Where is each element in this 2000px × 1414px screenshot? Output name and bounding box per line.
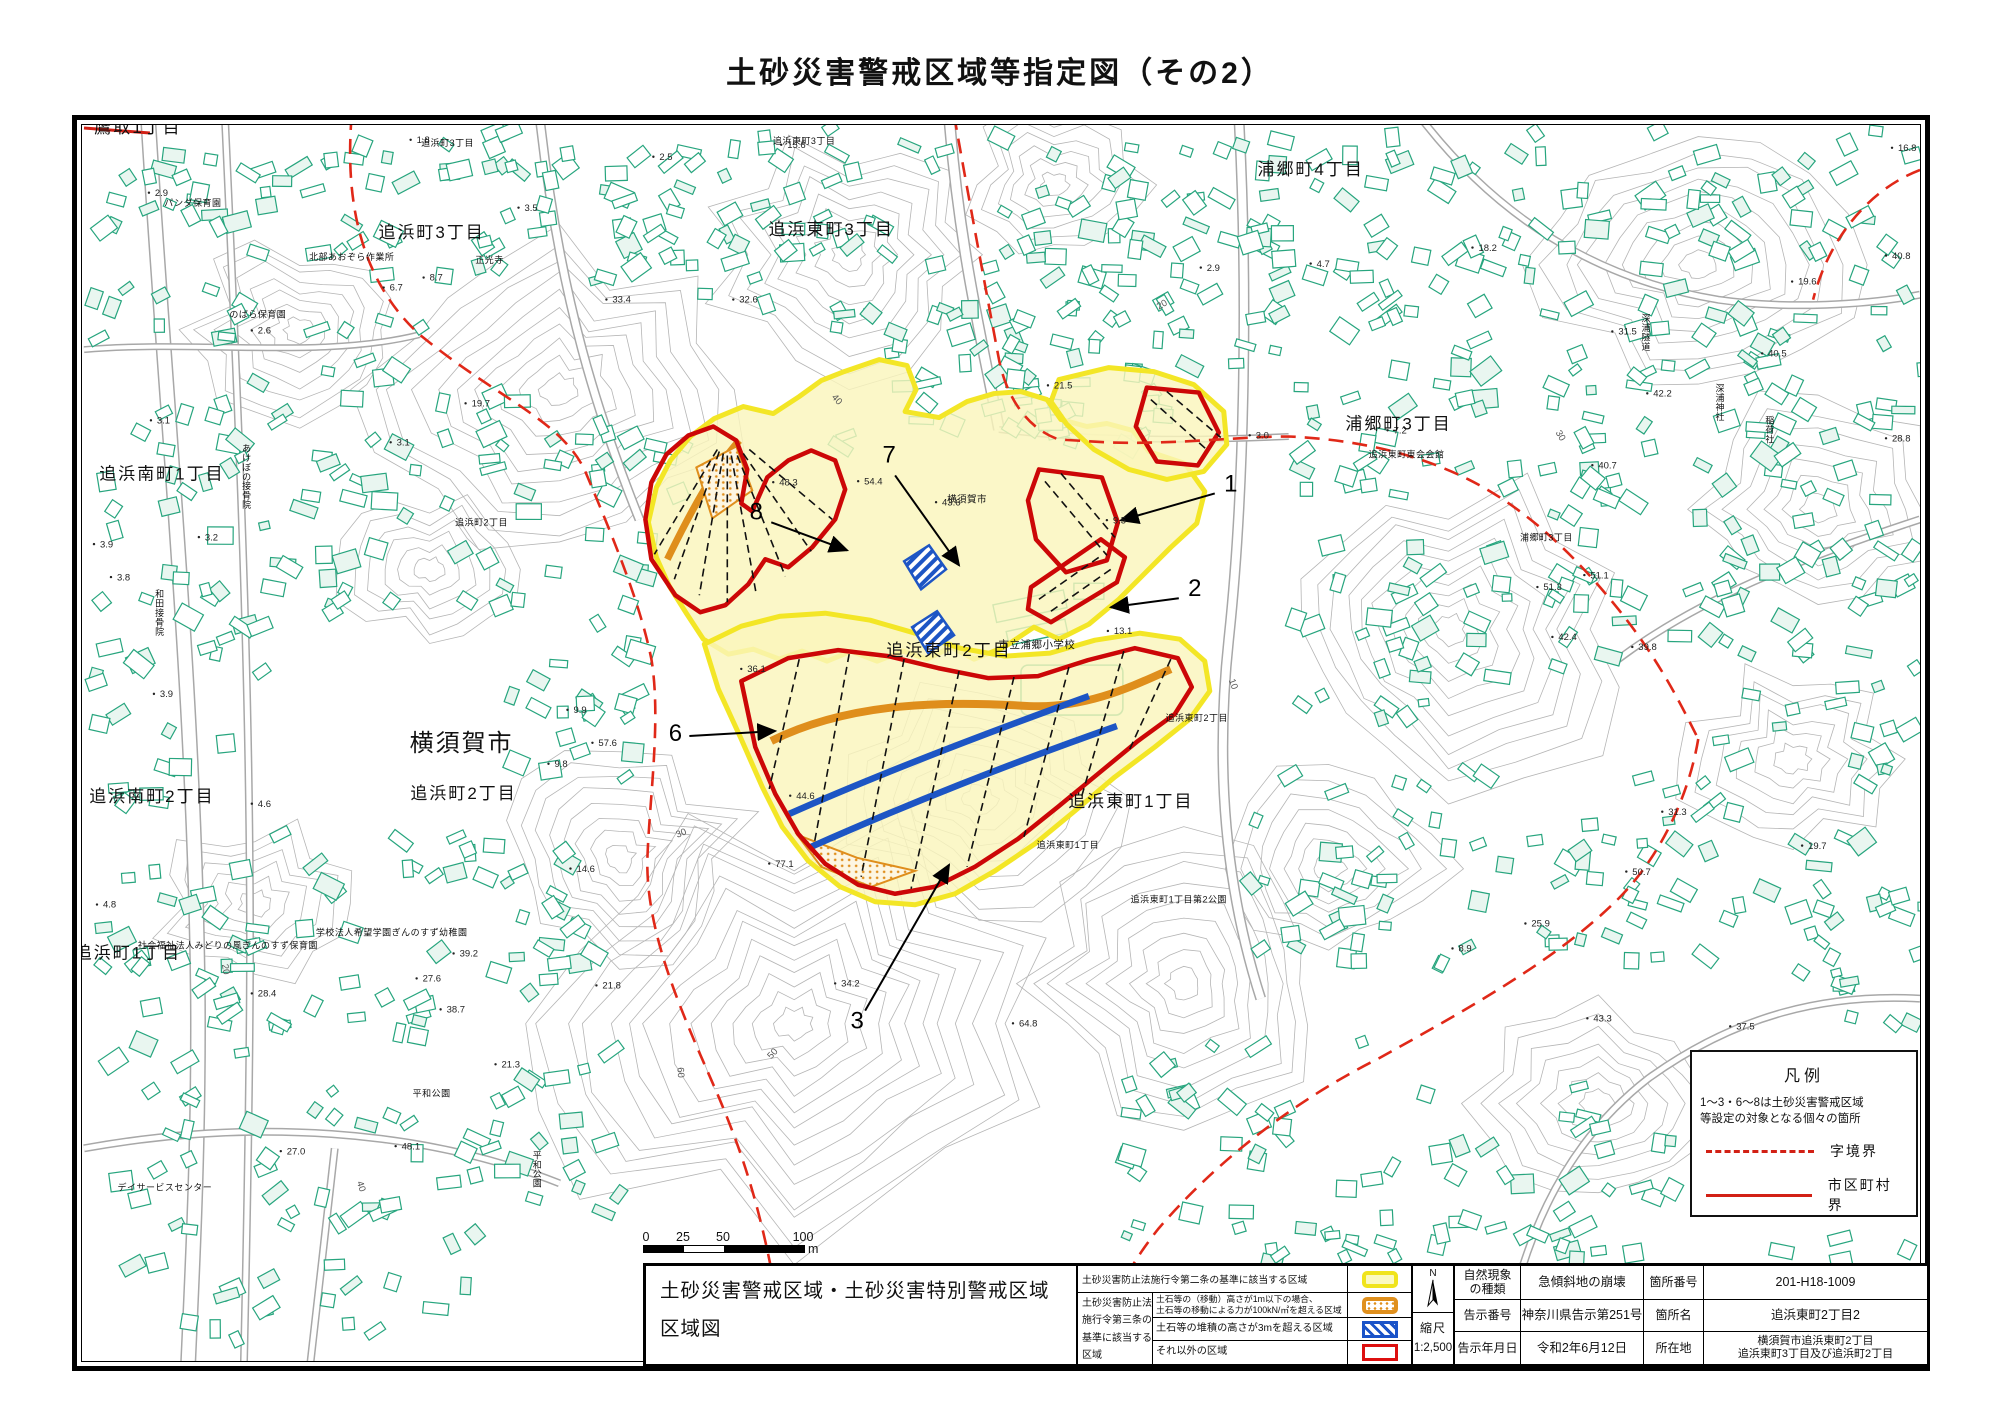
scale-unit: m <box>808 1242 818 1256</box>
contour-label: 40 <box>354 1180 368 1193</box>
spot-elevation: 3.8 <box>117 572 130 583</box>
place-label: 追浜町3丁目 <box>421 137 474 148</box>
place-label: 社会福祉法人みどりの風ぎんのすず保育園 <box>138 940 318 951</box>
hazard-map-sheet: 土砂災害警戒区域等指定図（その2） <box>0 0 2000 1414</box>
place-label: 正光寺 <box>475 254 503 265</box>
place-label: 和田接骨院 <box>155 589 164 637</box>
spot-elevation: 3.1 <box>397 437 410 448</box>
place-label: 横須賀市 <box>410 730 514 757</box>
solid-line-sample <box>1706 1194 1812 1197</box>
spot-elevation: 19.7 <box>472 399 490 410</box>
spot-elevation: 4.7 <box>1317 259 1330 270</box>
place-label: 浦郷町3丁目 <box>1345 415 1451 434</box>
scale-bar: 0 25 50 100 m <box>643 1230 843 1260</box>
spot-elevation: 48.3 <box>779 477 797 488</box>
spot-elevation: 64.8 <box>1019 1019 1037 1030</box>
topographic-map: 123678 2.51.82.92.63.13.13.23.83.93.94.6… <box>82 125 1920 1361</box>
spot-elevation: 19.6 <box>1798 277 1816 288</box>
place-label: 横須賀市 <box>947 493 987 505</box>
place-label: 平和公園 <box>533 1150 542 1188</box>
spot-elevation: 3.0 <box>1256 430 1269 441</box>
spot-elevation: 25.9 <box>1531 919 1549 930</box>
legend-row-article2: 土砂災害防止法施行令第二条の基準に該当する区域 <box>1078 1266 1411 1293</box>
spot-elevation: 4.8 <box>103 900 116 911</box>
blue-hatch-swatch <box>1362 1321 1398 1338</box>
place-label: 深浦神社 <box>1715 384 1724 422</box>
spot-elevation: 19.7 <box>1808 841 1826 852</box>
spot-elevation: 2.5 <box>659 152 672 163</box>
place-label: 追浜東町3丁目 <box>773 135 835 146</box>
spot-elevation: 8.7 <box>430 273 443 284</box>
spot-elevation: 36.1 <box>747 664 765 675</box>
place-label: 追浜町2丁目 <box>455 516 508 527</box>
place-label: 浦郷町4丁目 <box>1258 160 1364 179</box>
red-outline-swatch <box>1362 1344 1398 1361</box>
designation-details-table: 自然現象 の種類 急傾斜地の崩壊 箇所番号 201-H18-1009 告示番号 … <box>1455 1266 1927 1364</box>
spot-elevation: 38.7 <box>447 1005 465 1016</box>
spot-elevation: 28.8 <box>1892 433 1910 444</box>
spot-elevation: 39.2 <box>460 949 478 960</box>
spot-elevation: 42.2 <box>1653 389 1671 400</box>
contour-label: 20 <box>219 963 232 975</box>
place-label: 追浜東町1丁目 <box>1068 792 1193 811</box>
legend-item-municipal-boundary: 市区町村界 <box>1706 1175 1906 1215</box>
place-label: 北部あおぞら作業所 <box>309 251 394 262</box>
spot-elevation: 42.4 <box>1558 632 1576 643</box>
site-number: 2 <box>1188 575 1201 602</box>
scale-bar-graphic <box>643 1245 805 1253</box>
legend-item-aza-boundary: 字境界 <box>1706 1141 1906 1161</box>
spot-elevation: 3.1 <box>157 416 170 427</box>
legend-group-article3: 土砂災害防止法 施行令第三条の 基準に該当する 区域 <box>1078 1293 1153 1364</box>
contour-label: 60 <box>674 1067 686 1078</box>
north-label: N <box>1429 1268 1436 1279</box>
detail-key: 告示番号 <box>1455 1299 1520 1332</box>
spot-elevation: 48.1 <box>402 1141 420 1152</box>
scale-label: 縮尺 <box>1420 1319 1446 1336</box>
spot-elevation: 40.8 <box>1892 251 1910 262</box>
spot-elevation: 3.2 <box>205 532 218 543</box>
spot-elevation: 77.1 <box>775 859 793 870</box>
site-number: 7 <box>882 441 895 468</box>
place-label: 追浜町3丁目 <box>378 223 484 242</box>
place-label: 深浦隧道 <box>1642 314 1651 352</box>
sheet-subtitle: 土砂災害警戒区域・土砂災害特別警戒区域 区域図 <box>646 1266 1078 1364</box>
spot-elevation: 32.6 <box>739 295 757 306</box>
spot-elevation: 6.7 <box>390 283 403 294</box>
place-label: 鷹取1丁目 <box>94 125 181 137</box>
page-title: 土砂災害警戒区域等指定図（その2） <box>0 48 2000 92</box>
legend-title: 凡例 <box>1692 1062 1916 1086</box>
place-label: 追浜東町3丁目 <box>769 220 894 239</box>
legend-row-deposit: 土石等の堆積の高さが3mを超える区域 <box>1153 1318 1411 1342</box>
spot-elevation: 16.8 <box>1898 143 1916 154</box>
place-label: のばら保育園 <box>229 309 286 320</box>
map-legend-box: 凡例 1～3・6～8は土砂災害警戒区域 等設定の対象となる個々の箇所 字境界 市… <box>1690 1050 1918 1217</box>
spot-elevation: 39.8 <box>1638 642 1656 653</box>
place-label: 追浜南町1丁目 <box>99 464 224 483</box>
spot-elevation: 50.7 <box>1632 867 1650 878</box>
spot-elevation: 21.8 <box>602 981 620 992</box>
spot-elevation: 9.5 <box>1113 515 1126 526</box>
legend-row-debris: 土石等の（移動）高さが1m以下の場合、 土石等の移動による力が100kN/㎡を超… <box>1153 1293 1411 1318</box>
place-label: 追浜東町1丁目 <box>1037 839 1099 850</box>
contour-label: 30 <box>1553 429 1568 444</box>
spot-elevation: 2.6 <box>258 326 271 337</box>
spot-elevation: 51.1 <box>1590 570 1608 581</box>
place-label: 追浜東町東会会館 <box>1369 448 1445 459</box>
map-canvas[interactable]: 123678 2.51.82.92.63.13.13.23.83.93.94.6… <box>81 124 1921 1362</box>
spot-elevation: 4.6 <box>258 799 271 810</box>
spot-elevation: 33.4 <box>612 295 630 306</box>
spot-elevation: 31.5 <box>1618 327 1636 338</box>
detail-value: 令和2年6月12日 <box>1520 1331 1643 1364</box>
orange-dots-swatch <box>1362 1297 1398 1314</box>
spot-elevation: 3.9 <box>100 539 113 550</box>
detail-value: 追浜東町2丁目2 <box>1703 1299 1927 1332</box>
place-label: 追浜東町2丁目 <box>1166 712 1228 723</box>
detail-key: 自然現象 の種類 <box>1455 1266 1520 1299</box>
spot-elevation: 3.9 <box>160 689 173 700</box>
site-number: 8 <box>750 498 763 525</box>
place-label: 追浜東町2丁目 <box>886 641 1011 660</box>
place-label: あけぼの接骨院 <box>242 443 251 510</box>
place-label: パンダ保育園 <box>164 197 221 208</box>
place-label: 追浜南町2丁目 <box>89 787 214 806</box>
site-number: 6 <box>669 720 682 747</box>
place-label: 追浜町2丁目 <box>410 784 516 803</box>
map-frame: 123678 2.51.82.92.63.13.13.23.83.93.94.6… <box>72 115 1930 1371</box>
legend-note: 1～3・6～8は土砂災害警戒区域 等設定の対象となる個々の箇所 <box>1700 1096 1908 1127</box>
place-label: 学校法人希望学園ぎんのすず幼稚園 <box>316 927 468 938</box>
zone-legend-table: 土砂災害防止法施行令第二条の基準に該当する区域 土砂災害防止法 施行令第三条の … <box>1078 1266 1413 1364</box>
spot-elevation: 21.5 <box>1054 381 1072 392</box>
spot-elevation: 40.7 <box>1598 460 1616 471</box>
spot-elevation: 57.6 <box>598 738 616 749</box>
place-label: 平和公園 <box>413 1088 451 1098</box>
place-label: 追浜東町1丁目第2公園 <box>1131 894 1227 905</box>
north-and-scale-cell: N 縮尺 1:2,500 <box>1413 1266 1455 1364</box>
spot-elevation: 27.6 <box>423 974 441 985</box>
spot-elevation: 2.9 <box>1207 263 1220 274</box>
spot-elevation: 31.3 <box>1668 807 1686 818</box>
spot-elevation: 18.2 <box>1478 243 1496 254</box>
place-label: 稲荷社 <box>1765 415 1774 445</box>
detail-key: 告示年月日 <box>1455 1331 1520 1364</box>
spot-elevation: 27.0 <box>287 1146 305 1157</box>
spot-elevation: 34.2 <box>841 979 859 990</box>
place-label: 浦郷町3丁目 <box>1520 531 1573 542</box>
detail-value: 201-H18-1009 <box>1703 1266 1927 1299</box>
place-label: 市立浦郷小学校 <box>999 638 1076 651</box>
site-number: 1 <box>1224 470 1237 497</box>
spot-elevation: 9.9 <box>573 705 586 716</box>
detail-key: 所在地 <box>1643 1331 1703 1364</box>
spot-elevation: 8.9 <box>1459 944 1472 955</box>
north-arrow-icon <box>1424 1279 1442 1309</box>
spot-elevation: 44.6 <box>796 791 814 802</box>
site-number: 3 <box>850 1008 863 1035</box>
spot-elevation: 3.5 <box>525 203 538 214</box>
detail-value: 横須賀市追浜東町2丁目 追浜東町3丁目及び追浜町2丁目 <box>1703 1331 1927 1364</box>
spot-elevation: 21.3 <box>502 1059 520 1070</box>
legend-row-other: それ以外の区域 <box>1153 1341 1411 1364</box>
spot-elevation: 37.5 <box>1736 1022 1754 1033</box>
detail-value: 神奈川県告示第251号 <box>1520 1299 1643 1332</box>
spot-elevation: 13.1 <box>1114 626 1132 637</box>
spot-elevation: 51.3 <box>1543 582 1561 593</box>
yellow-zone-swatch <box>1362 1271 1398 1288</box>
dashed-line-sample <box>1706 1150 1814 1153</box>
sheet-info-table: 土砂災害警戒区域・土砂災害特別警戒区域 区域図 土砂災害防止法施行令第二条の基準… <box>643 1263 1930 1367</box>
spot-elevation: 9.8 <box>554 759 567 770</box>
detail-key: 箇所名 <box>1643 1299 1703 1332</box>
spot-elevation: 28.4 <box>258 989 276 1000</box>
detail-key: 箇所番号 <box>1643 1266 1703 1299</box>
detail-value: 急傾斜地の崩壊 <box>1520 1266 1643 1299</box>
spot-elevation: 40.5 <box>1768 349 1786 360</box>
spot-elevation: 54.4 <box>864 476 882 487</box>
place-label: デイサービスセンター <box>118 1181 213 1192</box>
spot-elevation: 43.3 <box>1593 1014 1611 1025</box>
spot-elevation: 14.6 <box>576 864 594 875</box>
scale-value: 1:2,500 <box>1414 1342 1452 1354</box>
